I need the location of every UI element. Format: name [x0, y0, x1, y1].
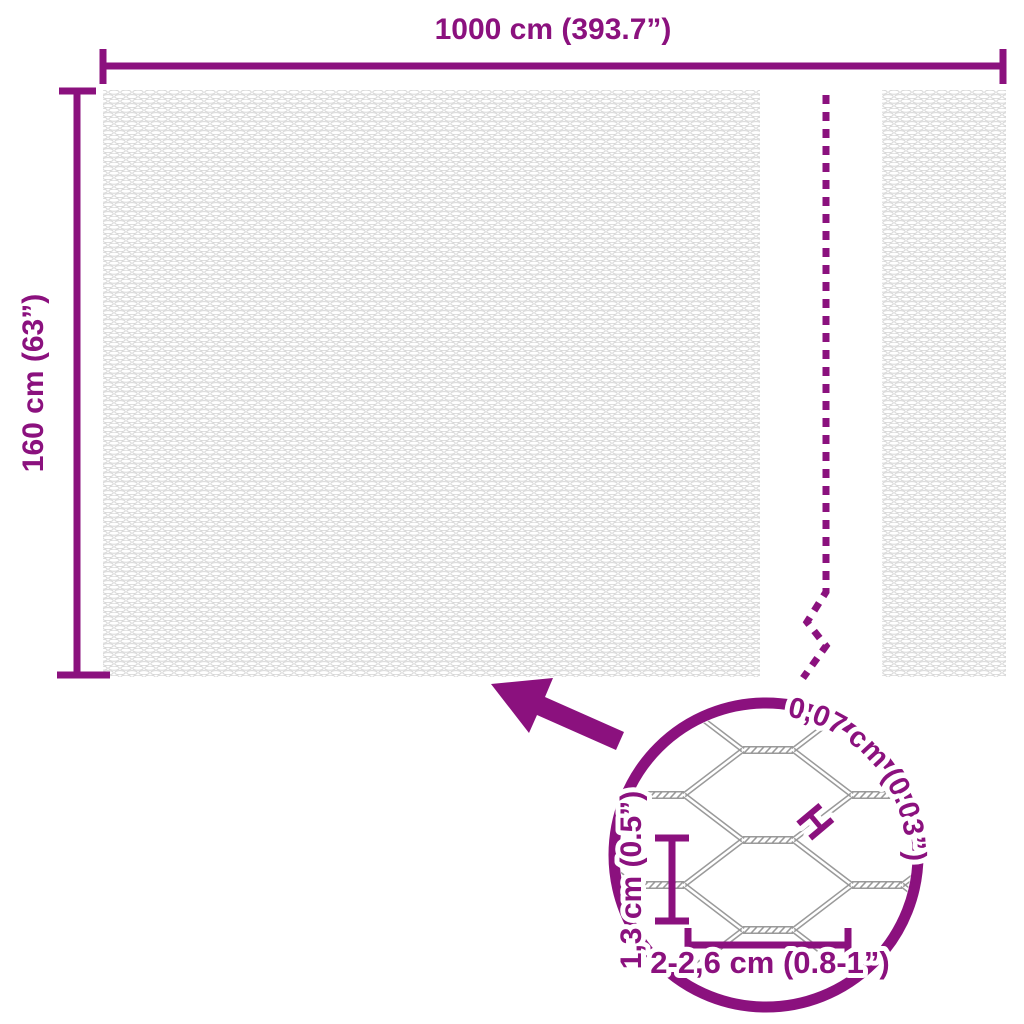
- wire-twist: [743, 927, 793, 933]
- mesh-height-label: 1,3 cm (0.5”): [615, 791, 648, 969]
- top-width-dimension: 1000 cm (393.7”): [103, 13, 1003, 84]
- cut-break-dashed-line: [803, 95, 826, 678]
- mesh-height-measure: [655, 838, 689, 921]
- wire-diagonal: [683, 793, 744, 841]
- wire-twist: [852, 702, 902, 708]
- wire-twist: [634, 702, 684, 708]
- mesh-width-label: 2-2,6 cm (0.8-1”): [650, 945, 890, 980]
- wire-twist: [743, 747, 793, 753]
- product-dimension-diagram: 1000 cm (393.7”) 160 cm (63”): [0, 0, 1024, 1024]
- wire-diagonal: [683, 883, 744, 931]
- wire-diagonal: [792, 883, 853, 931]
- wire-diagonal: [901, 928, 962, 976]
- wire-diagonal: [901, 703, 962, 751]
- magnifier-arrow-icon: [491, 678, 624, 750]
- height-dimension-label: 160 cm (63”): [17, 294, 50, 472]
- wire-twist: [743, 837, 793, 843]
- mesh-detail-magnifier: H 0,07 cm (0.03”) 1,3 cm (0.5”) 2-2,6 cm…: [574, 658, 962, 1007]
- diagram-svg: 1000 cm (393.7”) 160 cm (63”): [0, 0, 1024, 1024]
- wire-diagonal: [792, 838, 853, 886]
- left-height-dimension: 160 cm (63”): [17, 91, 110, 675]
- mesh-panel-right: [882, 90, 1006, 677]
- width-dimension-label: 1000 cm (393.7”): [435, 13, 672, 46]
- mesh-panel-main: [103, 90, 760, 677]
- wire-diagonal: [683, 748, 744, 796]
- wire-twist: [852, 882, 902, 888]
- wire-diagonal: [683, 838, 744, 886]
- wire-diagonal: [792, 748, 853, 796]
